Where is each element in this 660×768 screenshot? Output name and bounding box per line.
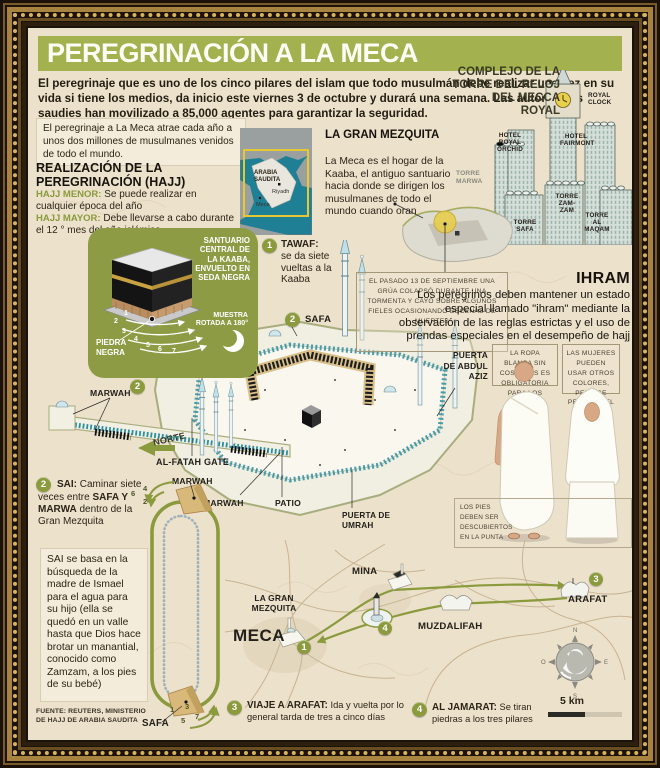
attract-note: El peregrinaje a La Meca atrae cada año …	[36, 118, 246, 166]
gran-mezquita-heading: LA GRAN MEZQUITA	[325, 129, 455, 142]
patio-label: PATIO	[275, 499, 301, 509]
sai-label: SAI:	[57, 479, 77, 490]
route-stop-1: 1	[297, 640, 311, 654]
locator-city-meca: Meca	[256, 202, 271, 208]
realizacion-heading: REALIZACIÓN DE LA PEREGRINACIÓN (HAJJ)	[36, 161, 241, 189]
kaaba-panel: SANTUARIO CENTRAL DE LA KAABA, ENVUELTO …	[88, 228, 258, 378]
step-jamarat: AL JAMARAT: Se tiran piedras a los tres …	[432, 702, 540, 725]
hotel-royal-orchid-label: HOTEL ROYAL ORCHID	[494, 132, 526, 154]
lap-number: 2	[114, 318, 118, 325]
compass-n: N	[573, 628, 577, 634]
route-gran-mezquita-label: LA GRAN MEZQUITA	[243, 594, 305, 613]
safa-label-diagram: SAFA	[142, 718, 169, 729]
lap-number: 4	[134, 336, 138, 343]
page-title: PEREGRINACIÓN A LA MECA	[47, 38, 418, 69]
locator-city-riyadh: Riyadh	[272, 189, 289, 195]
tawaf-text: se da siete vueltas a la Kaaba	[281, 251, 332, 286]
route-mina-label: MINA	[352, 566, 377, 577]
step-2-badge: 2	[36, 477, 51, 492]
sai-number: 2	[143, 497, 147, 506]
sai-number: 5	[181, 716, 185, 725]
hajj-mayor-label: HAJJ MAYOR:	[36, 213, 101, 224]
al-fatah-gate-label: AL-FATAH GATE	[156, 457, 229, 467]
arafat-step-label: VIAJE A ARAFAT:	[247, 700, 328, 711]
mina-mosque-icon	[388, 564, 412, 590]
sai-walk-diagram	[128, 476, 240, 738]
jamarat-step-label: AL JAMARAT:	[432, 702, 497, 713]
step-2-safa-badge: 2	[285, 312, 300, 327]
scale-bar	[548, 712, 622, 717]
feet-note: LOS PIES DEBEN SER DESCUBIERTOS EN LA PU…	[460, 503, 512, 543]
compass-rose: N E S O	[541, 628, 608, 700]
compass-e: E	[604, 660, 608, 666]
torre-al-maqam-label: TORRE AL MAQAM	[584, 212, 610, 234]
lap-number: 1	[124, 310, 128, 317]
saudi-arabia-locator-map: ARABIA SAUDITA Riyadh Meca	[240, 128, 312, 235]
tawaf-label: TAWAF:	[281, 239, 319, 250]
lap-number: 5	[146, 342, 150, 349]
route-muzdalifah-label: MUZDALIFAH	[418, 621, 482, 632]
sai-number: 1	[170, 705, 174, 714]
sai-number: 6	[131, 489, 135, 498]
tower-complex-heading: COMPLEJO DE LA TORRE DEL RELOJ DEL MECCA…	[452, 66, 560, 118]
hotel-fairmont-label: HOTEL FAIRMONT	[560, 133, 592, 147]
step-4-badge: 4	[412, 702, 427, 717]
sai-number: 4	[143, 484, 147, 493]
ihram-text: Los peregrinos deben mantener un estado …	[390, 289, 630, 344]
ihram-block: IHRAM Los peregrinos deben mantener un e…	[390, 270, 630, 344]
sai-number: 7	[195, 712, 199, 721]
torre-marwa-label: TORRE MARWA	[456, 170, 488, 185]
marwah-label-west: MARWAH	[90, 389, 131, 399]
route-lines	[305, 585, 567, 642]
route-stop-3: 3	[589, 572, 603, 586]
step-arafat: VIAJE A ARAFAT: Ida y vuelta por lo gene…	[247, 700, 409, 723]
step-tawaf: TAWAF: se da siete vueltas a la Kaaba	[281, 239, 343, 286]
muzdalifah-hill-icon	[440, 595, 472, 610]
hajj-menor-label: HAJJ MENOR:	[36, 189, 101, 200]
infographic-canvas: PEREGRINACIÓN A LA MECA El peregrinaje q…	[28, 28, 632, 740]
kaaba-sanctuary-label: SANTUARIO CENTRAL DE LA KAABA, ENVUELTO …	[192, 236, 250, 283]
crane-location-minimap	[383, 196, 523, 274]
umrah-gate-label: PUERTA DE UMRAH	[342, 511, 394, 532]
step-sai: 2SAI: Caminar siete veces entre SAFA Y M…	[38, 477, 142, 528]
route-stop-4: 4	[378, 621, 392, 635]
locator-country-line2: SAUDITA	[254, 177, 281, 183]
royal-clock-label: ROYAL CLOCK	[588, 92, 622, 106]
compass-o: O	[541, 660, 546, 666]
safa-marker-label: SAFA	[305, 315, 331, 326]
hajj-menor: HAJJ MENOR: Se puede realizar en cualqui…	[36, 189, 236, 213]
torre-zamzam-label: TORRE ZAM-ZAM	[554, 193, 580, 215]
lap-number: 6	[158, 346, 162, 353]
sai-number: 3	[185, 702, 189, 711]
route-arafat-label: ARAFAT	[568, 594, 607, 605]
step-1-badge: 1	[262, 238, 277, 253]
framed-infographic: PEREGRINACIÓN A LA MECA El peregrinaje q…	[0, 0, 660, 768]
seven-laps-arrows	[88, 306, 258, 368]
locator-country-line1: ARABIA	[254, 170, 278, 176]
lap-number: 7	[172, 348, 176, 355]
marwah-hill	[176, 482, 212, 514]
lap-number: 3	[122, 328, 126, 335]
ihram-heading: IHRAM	[390, 270, 630, 288]
marwah-step-badge: 2	[130, 379, 145, 394]
route-meca-label: MECA	[233, 626, 285, 646]
scale-label: 5 km	[560, 695, 584, 707]
step-3-badge: 3	[227, 700, 242, 715]
